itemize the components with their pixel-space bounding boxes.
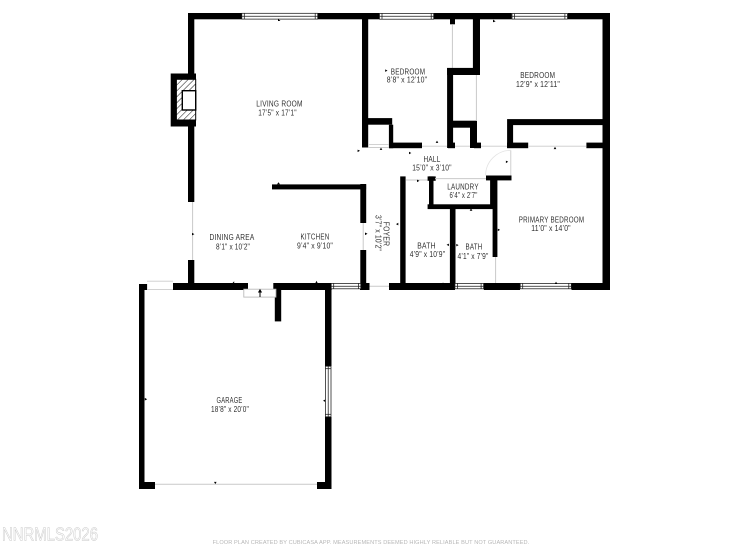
svg-text:KITCHEN: KITCHEN <box>301 233 330 242</box>
svg-text:3’7" x 10’2": 3’7" x 10’2" <box>374 215 383 251</box>
svg-text:8’1" x 10’2": 8’1" x 10’2" <box>216 243 250 252</box>
svg-text:BEDROOM: BEDROOM <box>520 71 555 80</box>
svg-text:GARAGE: GARAGE <box>217 396 243 405</box>
svg-text:12’9" x 12’11": 12’9" x 12’11" <box>516 80 560 89</box>
svg-text:HALL: HALL <box>424 155 441 164</box>
svg-text:15’0" x 3’10": 15’0" x 3’10" <box>412 164 452 173</box>
svg-text:LIVING ROOM: LIVING ROOM <box>256 99 303 108</box>
svg-text:6’4" x 2’7": 6’4" x 2’7" <box>450 191 478 200</box>
svg-text:8’8" x 12’10": 8’8" x 12’10" <box>387 75 428 84</box>
svg-text:4’1" x 7’9": 4’1" x 7’9" <box>458 252 489 261</box>
svg-text:NNRMLS2026: NNRMLS2026 <box>2 525 98 545</box>
svg-text:FLOOR PLAN CREATED BY CUBICASA: FLOOR PLAN CREATED BY CUBICASA APP. MEAS… <box>213 540 530 546</box>
svg-text:DINING AREA: DINING AREA <box>210 233 255 242</box>
svg-text:17’5" x 17’1": 17’5" x 17’1" <box>258 109 297 118</box>
svg-text:11’0" x 14’0": 11’0" x 14’0" <box>531 224 571 233</box>
svg-text:9’4" x 9’10": 9’4" x 9’10" <box>297 242 333 251</box>
svg-text:18’8" x 20’0": 18’8" x 20’0" <box>211 405 249 414</box>
svg-text:BATH: BATH <box>466 242 483 251</box>
svg-text:4’9" x 10’9": 4’9" x 10’9" <box>410 250 446 259</box>
